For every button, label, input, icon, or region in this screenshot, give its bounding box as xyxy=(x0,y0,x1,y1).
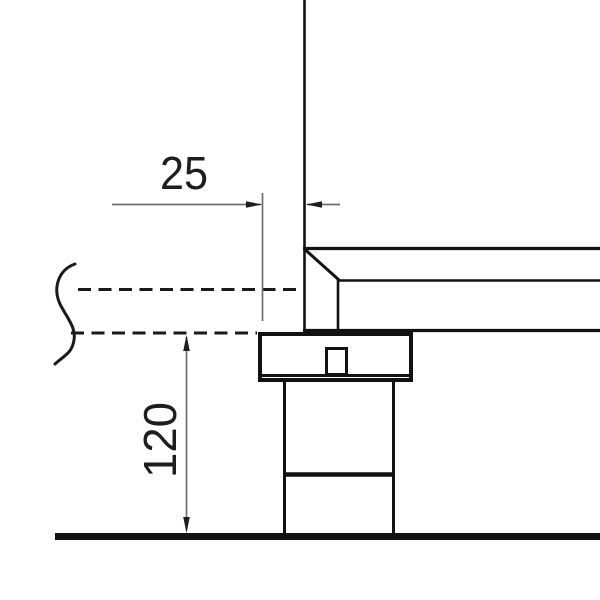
dim-120-label: 120 xyxy=(134,402,186,478)
break-symbol-curve xyxy=(55,264,75,364)
pedestal xyxy=(260,334,411,536)
dim-120-arrow-up-icon xyxy=(183,335,190,351)
board-chamfer-diagonal xyxy=(305,250,339,281)
dim-120-arrow-down-icon xyxy=(183,517,190,533)
dim-25-arrow-left-icon xyxy=(306,201,322,208)
dim-25-label: 25 xyxy=(160,147,208,199)
deck-structure xyxy=(303,0,600,334)
drawing-viewport: 25 120 xyxy=(0,0,600,600)
dim-25-arrow-right-icon xyxy=(246,201,262,208)
dimension-120: 120 xyxy=(134,335,190,533)
pedestal-slot xyxy=(327,349,347,375)
section-drawing: 25 120 xyxy=(0,0,600,600)
